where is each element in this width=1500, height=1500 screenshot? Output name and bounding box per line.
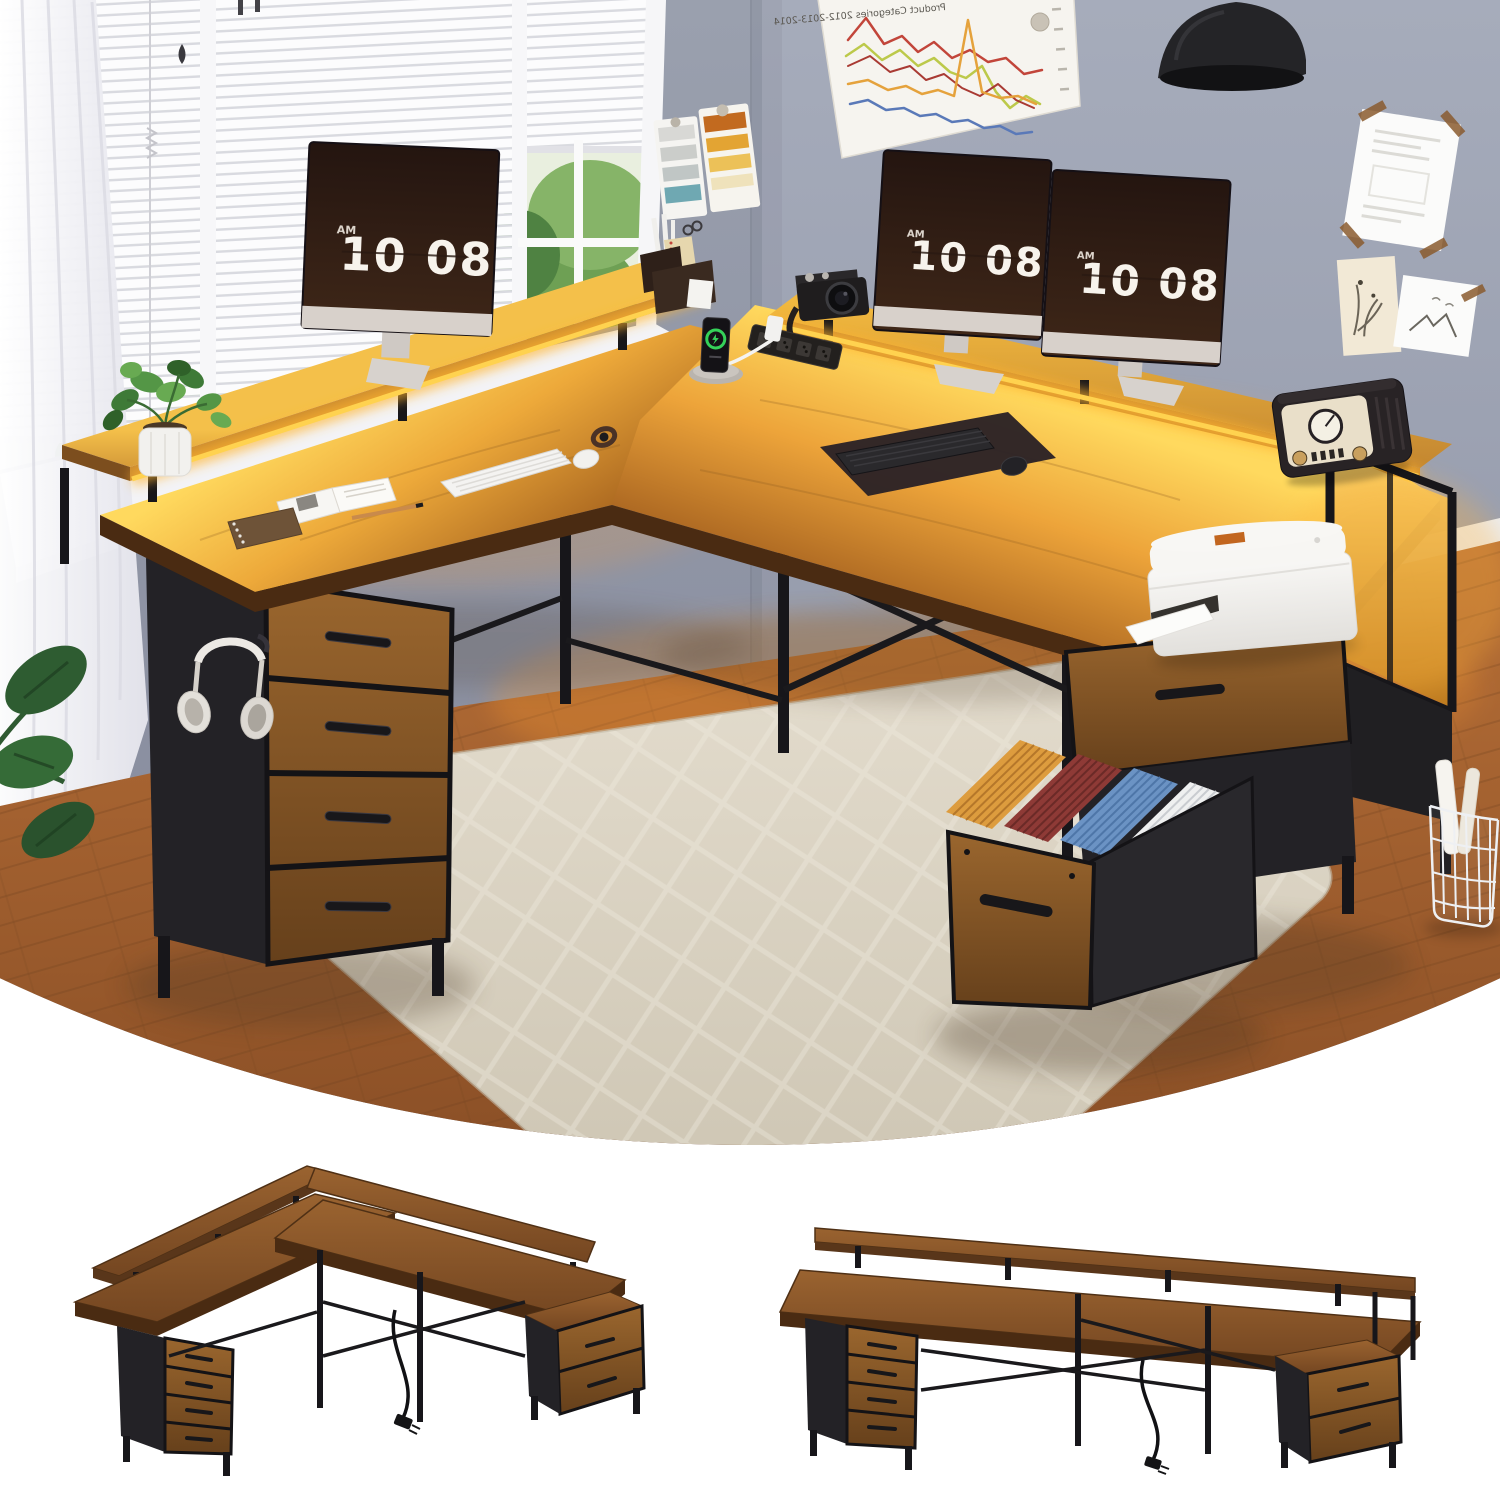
cfg-cabinet [525, 1292, 644, 1420]
file-drawer-front [948, 832, 1094, 1008]
clock-time: 10 08 [1078, 254, 1222, 312]
pedestal-leg [432, 938, 444, 996]
drawer-pedestal-left [146, 558, 452, 998]
config-straight [780, 1228, 1420, 1474]
clock-time: 10 08 [908, 233, 1046, 287]
blind-wand [238, 0, 243, 15]
pedestal-side-fabric [146, 558, 266, 964]
scene-svg: Product Categories 2012-2013-2014 [0, 0, 1500, 1500]
poster-pin [1031, 13, 1049, 31]
blinds-section-right [518, 0, 660, 152]
clock-time: 10 08 [339, 226, 495, 287]
cfg-pedestal [117, 1326, 233, 1476]
product-photo: Product Categories 2012-2013-2014 [0, 0, 1500, 1500]
basket-wires [1430, 806, 1498, 926]
cfg-power-cable [1141, 1360, 1169, 1474]
pedestal-leg [158, 936, 170, 998]
cabinet-leg [1342, 856, 1354, 914]
blind-rail [518, 146, 660, 153]
hero-room-scene: Product Categories 2012-2013-2014 [0, 0, 1500, 1160]
blind-wand [255, 0, 260, 12]
config-l-shaped [75, 1166, 644, 1476]
phone [701, 317, 731, 372]
cfg-pedestal [805, 1318, 917, 1470]
